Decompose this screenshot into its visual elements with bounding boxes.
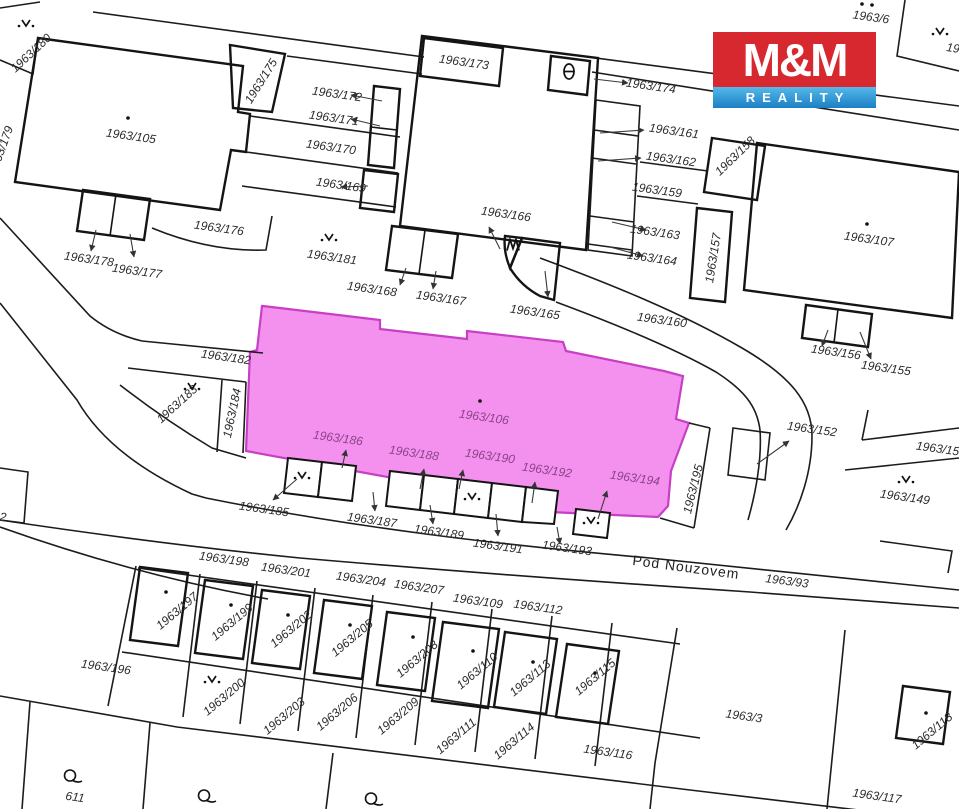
cadastral-map: 1963/1801963/1791963/1051963/1751963/176… xyxy=(0,0,959,809)
building-middle xyxy=(400,36,598,250)
mm-reality-logo: M&M REALITY xyxy=(713,32,876,108)
building-107 xyxy=(744,143,959,318)
map-lines xyxy=(0,0,959,809)
house-outlines xyxy=(130,567,619,724)
building-105 xyxy=(15,38,250,210)
logo-reality-text: REALITY xyxy=(713,87,876,108)
logo-mm-text: M&M xyxy=(713,32,876,87)
